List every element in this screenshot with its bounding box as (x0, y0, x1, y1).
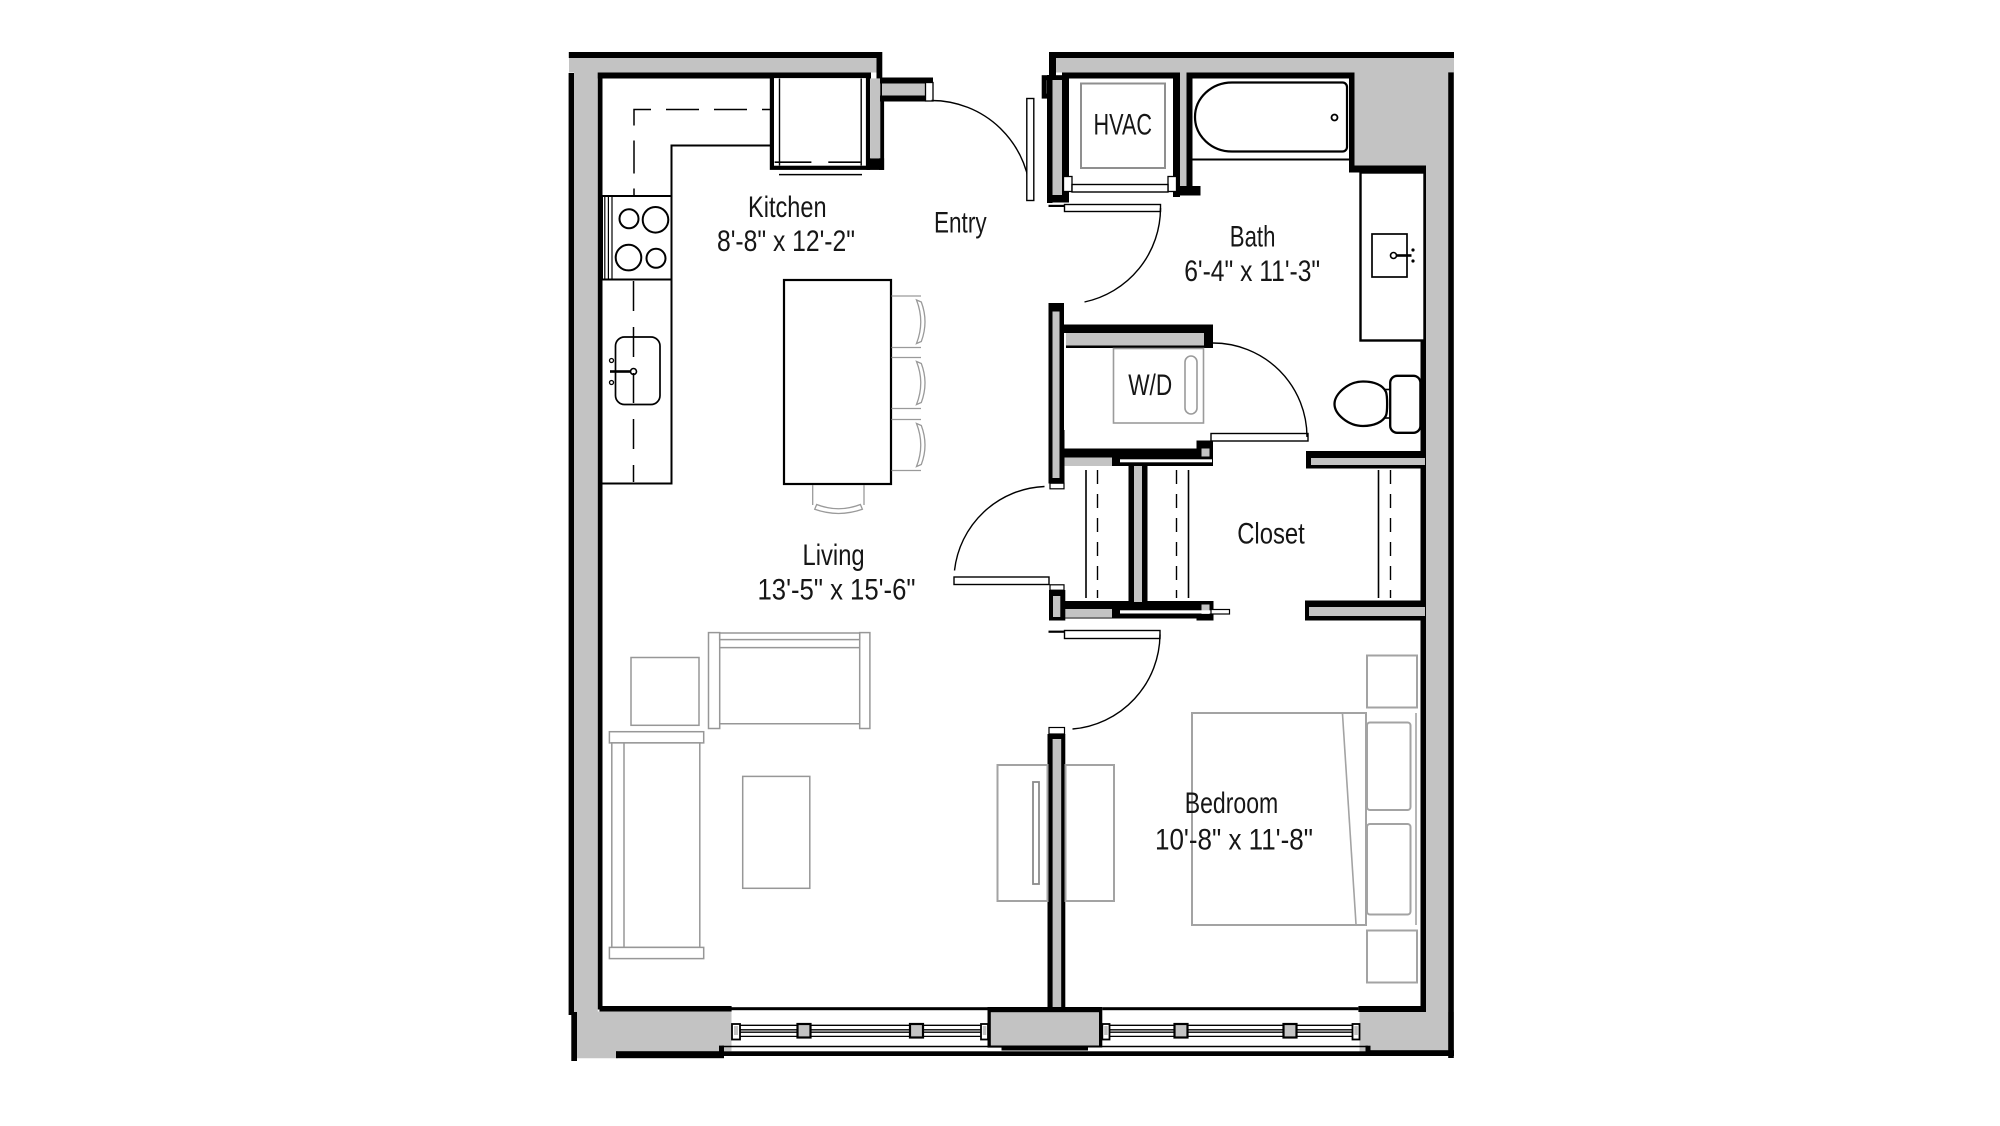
svg-text:Closet: Closet (1237, 518, 1305, 551)
svg-text:Bedroom: Bedroom (1185, 787, 1279, 820)
svg-text:13'-5" x 15'-6": 13'-5" x 15'-6" (758, 574, 916, 607)
svg-text:Living: Living (803, 539, 865, 572)
svg-text:6'-4" x 11'-3": 6'-4" x 11'-3" (1184, 255, 1320, 288)
svg-text:8'-8" x 12'-2": 8'-8" x 12'-2" (717, 225, 855, 258)
svg-text:Kitchen: Kitchen (748, 191, 827, 224)
svg-text:HVAC: HVAC (1094, 109, 1153, 142)
svg-text:Bath: Bath (1230, 221, 1276, 254)
svg-text:Entry: Entry (934, 206, 987, 239)
svg-text:W/D: W/D (1128, 369, 1172, 402)
svg-text:10'-8" x 11'-8": 10'-8" x 11'-8" (1155, 823, 1313, 856)
